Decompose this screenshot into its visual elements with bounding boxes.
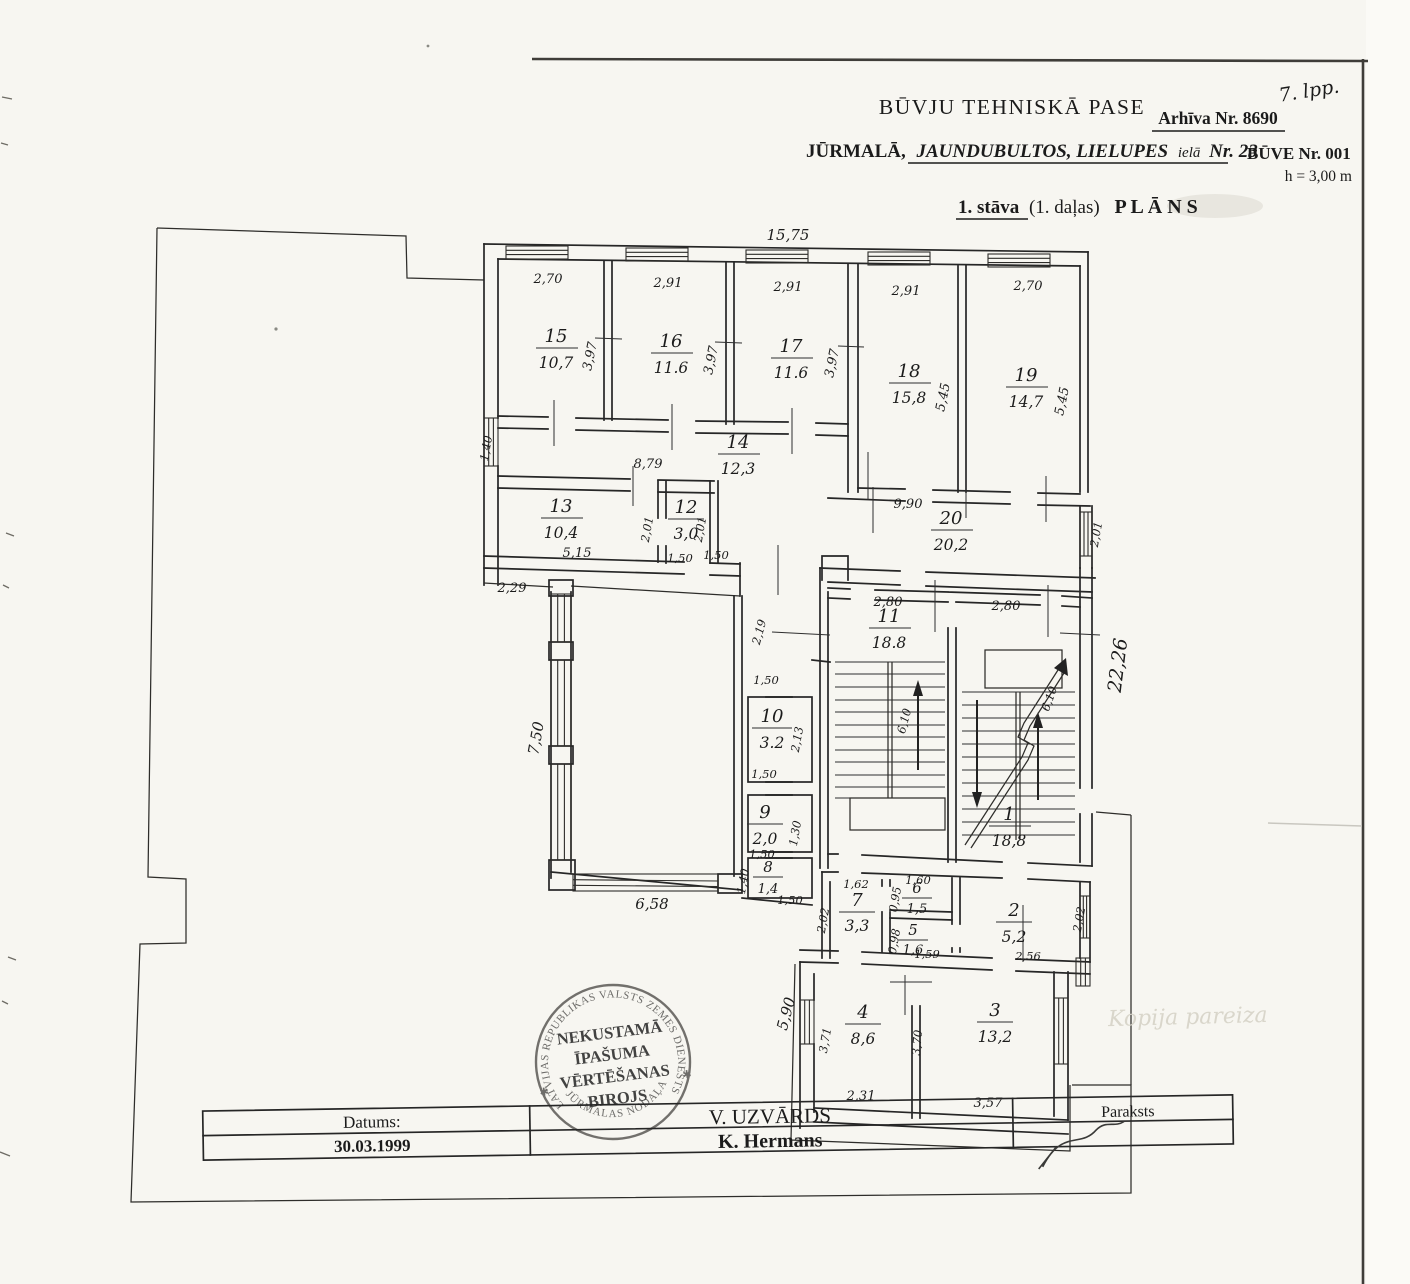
- dim: 2,80: [873, 595, 903, 610]
- svg-text:19: 19: [1015, 365, 1038, 386]
- page-number-note: 7. lpp.: [1277, 75, 1340, 106]
- svg-text:18.8: 18.8: [872, 634, 907, 652]
- room-20-label: 2020,2: [931, 508, 973, 554]
- dim: 1,30: [786, 819, 804, 847]
- svg-text:10,4: 10,4: [544, 524, 579, 542]
- dim: 1,50: [667, 551, 693, 565]
- svg-text:1,4: 1,4: [758, 882, 779, 897]
- window: [551, 660, 571, 746]
- dim: 7,50: [524, 720, 548, 756]
- window: [551, 764, 571, 860]
- dim: 5,45: [1052, 386, 1073, 417]
- dim: 3,71: [816, 1026, 834, 1054]
- dim: 2,80: [991, 599, 1021, 614]
- window: [1054, 998, 1068, 1064]
- svg-text:20: 20: [939, 508, 963, 529]
- signature-table: Datums: 30.03.1999 V. UZVĀRDS K. Hermans…: [203, 1095, 1234, 1182]
- stamp-star-right: ✱: [682, 1069, 693, 1082]
- svg-text:3.2: 3.2: [760, 734, 785, 752]
- building-number: BŪVE Nr. 001: [1247, 144, 1351, 163]
- hall-walls: [484, 580, 742, 893]
- svg-text:14,7: 14,7: [1009, 393, 1044, 411]
- room-16-label: 1611.6: [651, 331, 693, 377]
- dim: 2,01: [691, 515, 709, 544]
- plan-floor: 1. stāva: [958, 197, 1020, 218]
- svg-text:2: 2: [1007, 900, 1019, 921]
- dim: 2,02: [1070, 905, 1088, 934]
- archive-number: Arhīva Nr. 8690: [1158, 108, 1278, 128]
- dim: 1,50: [749, 847, 775, 861]
- room-15-label: 1510,7: [536, 326, 578, 372]
- address-line: JŪRMALĀ, JAUNDUBULTOS, LIELUPES ielā Nr.…: [806, 141, 1258, 162]
- room-3-label: 313,2: [977, 1000, 1013, 1046]
- scanned-technical-passport-page: 7. lpp. BŪVJU TEHNISKĀ PASE Arhīva Nr. 8…: [0, 0, 1410, 1284]
- dim: 1,40: [734, 867, 752, 895]
- dim-total-top: 15,75: [767, 226, 810, 244]
- dim: 1,50: [703, 548, 729, 562]
- dim: 5,90: [773, 995, 799, 1032]
- faint-copy-note: Kopija pareiza: [1107, 1003, 1268, 1032]
- name-row-1: V. UZVĀRDS: [709, 1103, 832, 1129]
- svg-text:13: 13: [550, 496, 573, 517]
- stairs-right-flight: [962, 650, 1075, 848]
- window: [800, 1000, 814, 1044]
- svg-text:10: 10: [761, 706, 784, 727]
- room-9-label: 92,0: [747, 802, 783, 848]
- dim: 2,19: [749, 618, 769, 647]
- dim: 2,56: [1014, 949, 1041, 963]
- room-8-label: 81,4: [753, 858, 783, 897]
- room-7-label: 73,3: [839, 890, 875, 935]
- dim: 2,29: [497, 581, 527, 596]
- dim: 1,50: [777, 893, 803, 907]
- dim: 2,70: [1013, 279, 1043, 294]
- room-19-label: 1914,7: [1006, 365, 1048, 411]
- window: [626, 248, 688, 261]
- rooms-4-3-walls: [800, 962, 1068, 1134]
- dim: 3,97: [822, 347, 843, 379]
- svg-text:10,7: 10,7: [539, 354, 574, 372]
- svg-text:18: 18: [898, 361, 921, 382]
- dim: 2,91: [653, 276, 683, 291]
- dim: 1,40: [477, 434, 495, 462]
- svg-text:17: 17: [780, 336, 803, 357]
- address-iela: ielā: [1178, 145, 1201, 161]
- dim: 3,97: [701, 344, 722, 376]
- dim: 5,45: [933, 382, 954, 413]
- stairs-up-arrow: [913, 680, 923, 696]
- header: 7. lpp. BŪVJU TEHNISKĀ PASE Arhīva Nr. 8…: [806, 75, 1352, 219]
- window: [506, 246, 568, 259]
- dim: 0,98: [885, 927, 903, 955]
- stamp-star-left: ✱: [539, 1086, 550, 1099]
- room-17-label: 1711.6: [771, 336, 813, 382]
- dim: 5,15: [563, 546, 592, 561]
- height-note: h = 3,00 m: [1285, 168, 1352, 185]
- svg-text:9: 9: [759, 802, 770, 823]
- paraksts-label: Paraksts: [1101, 1103, 1155, 1121]
- svg-text:3,3: 3,3: [845, 917, 870, 935]
- svg-text:3: 3: [989, 1000, 1000, 1021]
- floor-plan-sheet: 7. lpp. BŪVJU TEHNISKĀ PASE Arhīva Nr. 8…: [0, 0, 1410, 1284]
- room-18-label: 1815,8: [889, 361, 931, 407]
- svg-text:16: 16: [660, 331, 683, 352]
- svg-text:5,2: 5,2: [1002, 928, 1027, 946]
- dim: 1,62: [843, 877, 869, 891]
- name-row-2: K. Hermans: [718, 1129, 823, 1153]
- dim: 0,95: [886, 885, 904, 913]
- stairs-left-flight: [835, 662, 945, 830]
- room-4-label: 48,6: [845, 1002, 881, 1048]
- svg-text:12: 12: [675, 497, 698, 518]
- dim: 2,01: [1087, 520, 1105, 549]
- dim: 1,50: [753, 673, 779, 687]
- datums-value: 30.03.1999: [334, 1136, 411, 1156]
- address-city: JŪRMALĀ,: [806, 141, 906, 162]
- dim: 2,91: [773, 280, 803, 295]
- window: [551, 594, 571, 642]
- document-title: BŪVJU TEHNISKĀ PASE: [879, 95, 1145, 119]
- svg-text:15,8: 15,8: [892, 389, 927, 407]
- svg-text:13,2: 13,2: [978, 1028, 1013, 1046]
- svg-text:18,8: 18,8: [992, 832, 1027, 850]
- window: [746, 250, 808, 263]
- dim: 8,79: [634, 457, 663, 472]
- plan-word: P L Ā N S: [1114, 196, 1197, 218]
- plan-part: (1. daļas): [1029, 197, 1100, 218]
- svg-text:8,6: 8,6: [851, 1030, 876, 1048]
- room-10-label: 103.2: [752, 706, 792, 752]
- stairs-down-arrow: [972, 792, 982, 808]
- dim: 2,91: [891, 284, 921, 299]
- dim: 2,13: [788, 725, 806, 754]
- dim: 6,10: [894, 707, 914, 735]
- dim: 2,01: [638, 515, 656, 544]
- dim-total-right: 22,26: [1104, 637, 1133, 695]
- room-11-label: 1118.8: [869, 606, 911, 652]
- room-2-label: 25,2: [996, 900, 1032, 946]
- plan-title: 1. stāva (1. daļas) P L Ā N S: [958, 196, 1198, 218]
- address-street: JAUNDUBULTOS, LIELUPES: [916, 141, 1169, 162]
- dim: 1,50: [751, 767, 777, 781]
- dim: 2,70: [533, 272, 563, 287]
- svg-text:11.6: 11.6: [654, 359, 689, 377]
- dim: 6,58: [635, 895, 668, 913]
- svg-text:1: 1: [1003, 804, 1014, 825]
- svg-text:15: 15: [545, 326, 568, 347]
- svg-text:20,2: 20,2: [933, 536, 969, 554]
- official-stamp: LATVIJAS REPUBLIKAS VALSTS ZEMES DIENEST…: [527, 976, 699, 1148]
- dim: 3,70: [909, 1029, 925, 1056]
- dim: 1,59: [914, 947, 940, 961]
- dim: 3,97: [580, 340, 601, 372]
- svg-text:11.6: 11.6: [774, 364, 809, 382]
- dim: 9,90: [894, 497, 923, 512]
- svg-text:1,5: 1,5: [907, 902, 928, 917]
- svg-text:2,0: 2,0: [752, 830, 778, 848]
- room-14-label: 1412,3: [718, 432, 760, 478]
- room-13-label: 1310,4: [541, 496, 583, 542]
- dimension-labels: 15,75 2,70 2,91 2,91 2,91 2,70 3,97 3,97…: [477, 226, 1132, 1111]
- datums-label: Datums:: [343, 1112, 401, 1132]
- svg-text:14: 14: [727, 432, 750, 453]
- floor-plan: 1510,7 1611.6 1711.6 1815,8 1914,7 1412,…: [131, 226, 1268, 1202]
- svg-text:5: 5: [908, 921, 918, 939]
- dim: 1,60: [905, 873, 931, 887]
- rooms-10-9-8-walls: [742, 660, 830, 905]
- svg-text:4: 4: [856, 1002, 868, 1023]
- svg-text:7: 7: [851, 890, 863, 911]
- scan-edge-artifacts: [0, 0, 1410, 1284]
- svg-text:12,3: 12,3: [721, 460, 756, 478]
